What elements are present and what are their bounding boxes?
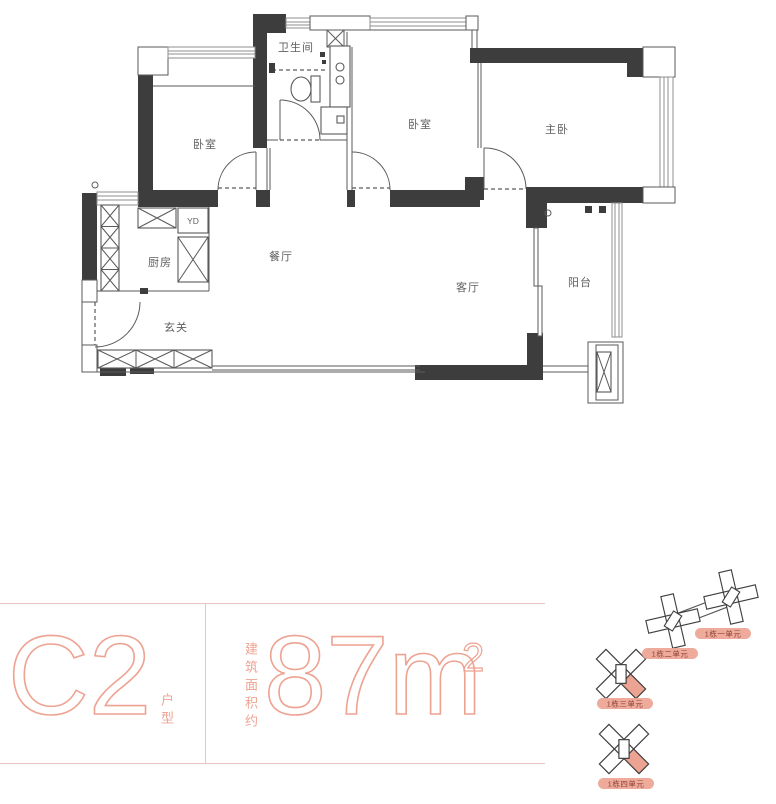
- divider-bottom: [0, 763, 545, 764]
- room-labels: 卧室 卫生间 卧室 主卧 厨房 餐厅 客厅 阳台 玄关 YD: [148, 40, 592, 334]
- room-label-kitchen: 厨房: [148, 256, 172, 269]
- keyplan-label-4: 1栋四单元: [608, 779, 645, 789]
- room-label-bedroom-1: 卧室: [193, 137, 217, 151]
- room-label-balcony: 阳台: [568, 275, 592, 289]
- keyplan-building-unit-2: [641, 589, 705, 653]
- floorplan: 卧室 卫生间 卧室 主卧 厨房 餐厅 客厅 阳台 玄关 YD: [0, 0, 776, 430]
- page: 卧室 卫生间 卧室 主卧 厨房 餐厅 客厅 阳台 玄关 YD C2 户型 建筑面…: [0, 0, 776, 804]
- unit-code: C2: [8, 620, 151, 732]
- room-label-bathroom: 卫生间: [278, 40, 314, 54]
- divider-vertical: [205, 603, 206, 763]
- area-prefix: 建筑面积约: [244, 642, 257, 732]
- keyplan-labels: 1栋一单元 1栋二单元 1栋三单元 1栋四单元: [597, 628, 751, 789]
- unit-type-label: 户型: [160, 693, 173, 729]
- divider-top: [0, 603, 545, 604]
- area-exponent: 2: [462, 638, 484, 678]
- keyplan-building-unit-4: [599, 724, 648, 773]
- keyplan-label-3: 1栋三单元: [607, 699, 644, 709]
- keyplan-building-unit-3: [596, 649, 645, 698]
- toilet-icon: [291, 77, 311, 101]
- keyplan-building-unit-1: [699, 565, 763, 629]
- keyplan-label-2: 1栋二单元: [652, 649, 689, 659]
- room-label-master-bedroom: 主卧: [545, 123, 569, 136]
- room-label-entry: 玄关: [164, 320, 188, 334]
- room-label-dining: 餐厅: [269, 249, 293, 263]
- keyplan-label-1: 1栋一单元: [705, 629, 742, 639]
- room-label-living: 客厅: [456, 280, 480, 294]
- keyplan-map: 1栋一单元 1栋二单元 1栋三单元 1栋四单元: [550, 550, 776, 804]
- room-label-bedroom-2: 卧室: [408, 117, 432, 131]
- area-value: 87m: [264, 620, 482, 732]
- room-label-duct: YD: [187, 216, 199, 226]
